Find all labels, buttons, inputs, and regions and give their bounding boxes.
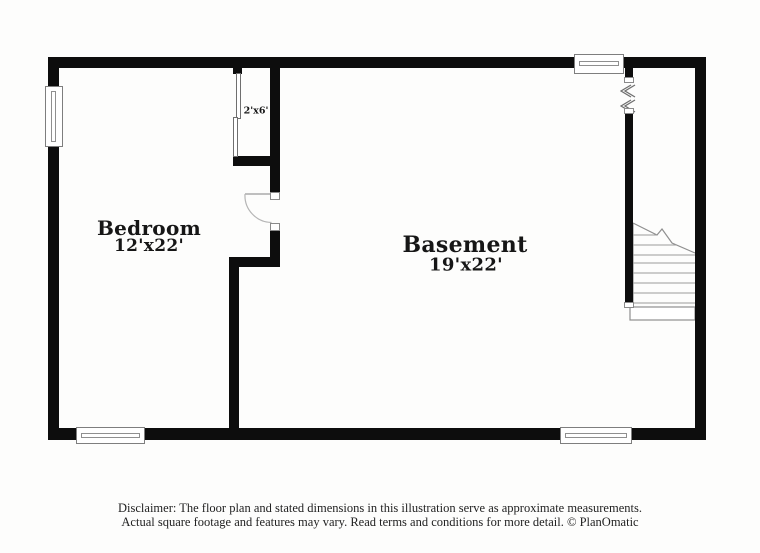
divider-wall-lower [229, 257, 239, 440]
door-jamb-top [270, 192, 280, 200]
staircase-icon [626, 216, 698, 322]
wall-bottom-middle-segment [143, 428, 562, 440]
stair-wall-cap-3 [624, 302, 634, 308]
wall-left-lower-segment [48, 145, 59, 440]
sliding-door-icon-panel-1 [236, 73, 241, 119]
floor-plan: Bedroom 12'x22' Basement 19'x22' 2'x6' D… [0, 0, 760, 553]
window-icon-top [574, 54, 624, 74]
divider-wall-below-door [270, 231, 280, 257]
disclaimer-line-1: Disclaimer: The floor plan and stated di… [0, 501, 760, 515]
window-icon-left [45, 86, 63, 147]
stair-wall-cap-2 [624, 108, 634, 114]
wall-break-icon-1 [620, 84, 638, 98]
window-glass [81, 433, 140, 438]
window-glass [51, 91, 56, 142]
wall-top-left-segment [48, 57, 578, 68]
window-glass [579, 61, 619, 66]
wall-right [695, 57, 706, 440]
divider-wall-upper [270, 67, 280, 192]
room-dims-closet: 2'x6' [244, 106, 269, 117]
room-dims-bedroom: 12'x22' [114, 236, 184, 256]
window-icon-bottom-right [560, 427, 632, 444]
door-jamb-bottom [270, 223, 280, 231]
stair-wall-cap-1 [624, 77, 634, 83]
disclaimer-line-2: Actual square footage and features may v… [0, 515, 760, 529]
wall-bottom-right-segment [630, 428, 706, 440]
stair-wall-main [625, 113, 633, 303]
window-glass [565, 433, 627, 438]
stair-wall-stub-top [625, 67, 633, 77]
window-icon-bottom-left [76, 427, 145, 444]
wall-bottom-left-segment [48, 428, 78, 440]
room-dims-basement: 19'x22' [429, 255, 503, 276]
wall-left-upper-segment [48, 57, 59, 88]
sliding-door-icon-panel-2 [233, 117, 238, 157]
